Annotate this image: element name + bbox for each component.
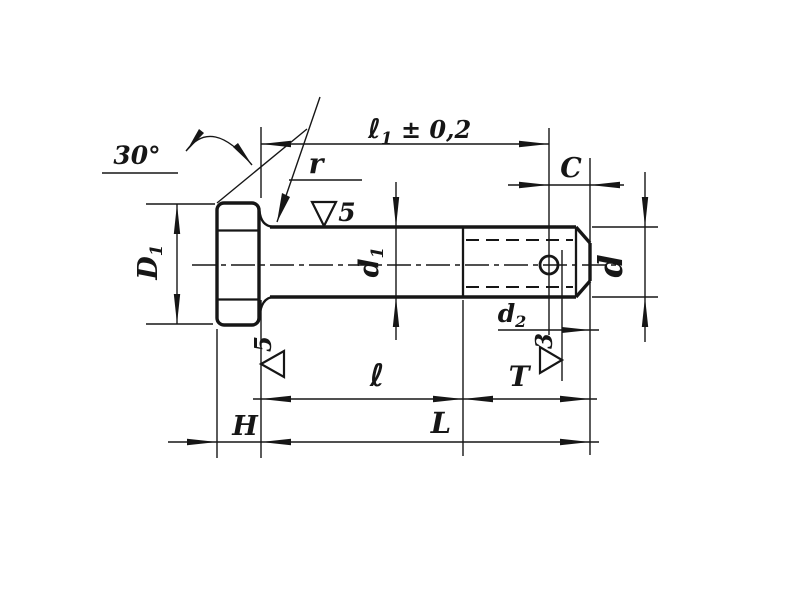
label-angle-30: 30° xyxy=(113,141,160,170)
surface-finish-value-shank: 5 xyxy=(338,198,355,227)
dim-l-arrow-right xyxy=(433,396,463,402)
r-leader-arrow xyxy=(277,193,290,222)
label-dim-d2: d2 xyxy=(498,299,527,331)
label-dim-l1-tol: ± 0,2 xyxy=(393,115,472,144)
label-dim-D1-main: D xyxy=(133,256,164,281)
dim-C-arrow-right xyxy=(590,182,620,188)
dim-D1-arrow-top xyxy=(174,204,180,234)
label-fillet-r: r xyxy=(309,147,326,180)
dim-H-arrow-left xyxy=(187,439,217,445)
label-dim-C: C xyxy=(560,153,582,184)
label-dim-H: H xyxy=(231,411,259,442)
dim-T-arrow-left xyxy=(463,396,493,402)
chamfer-edge-bottom xyxy=(576,281,590,297)
label-dim-d2-main: d xyxy=(498,299,515,328)
dim-d1-arrow-bottom xyxy=(393,297,399,327)
label-dim-L: L xyxy=(430,406,451,440)
dim-d-arrow-bottom xyxy=(642,297,648,327)
surface-finish-value-bearing: 5 xyxy=(250,336,277,352)
surface-finish-icon-thread xyxy=(540,347,562,373)
label-dim-l: ℓ xyxy=(369,358,385,394)
dim-l1-arrow-left xyxy=(261,141,291,147)
chamfer-construction-line xyxy=(217,129,307,203)
label-dim-l1: ℓ1 ± 0,2 xyxy=(367,114,471,149)
bolt-head-outline xyxy=(217,203,259,325)
chamfer-edge-top xyxy=(576,227,590,243)
angle-arc-arrow-right xyxy=(233,143,252,165)
surface-finish-icon-bearing xyxy=(261,351,284,377)
label-dim-l1-sub: 1 xyxy=(381,129,393,149)
label-dim-D1: D1 xyxy=(133,244,167,280)
dim-D1-arrow-bottom xyxy=(174,294,180,324)
part-outline xyxy=(192,203,620,325)
dimension-labels: 30° r ℓ1 ± 0,2 C D1 d1 d d2 ℓ T L H xyxy=(113,114,630,442)
label-dim-d1: d1 xyxy=(354,247,388,278)
dim-l1-arrow-right xyxy=(519,141,549,147)
dim-d-arrow-top xyxy=(642,197,648,227)
dim-d1-arrow-top xyxy=(393,197,399,227)
drawing-sheet: 5 5 3 30° r ℓ1 ± 0,2 C D1 d1 d d2 ℓ T L … xyxy=(0,0,800,600)
label-dim-d1-main: d xyxy=(354,258,385,277)
label-dim-d2-sub: 2 xyxy=(514,312,526,331)
label-dim-D1-sub: 1 xyxy=(147,244,167,256)
label-dim-l1-main: ℓ xyxy=(367,114,381,145)
angle-arc-arrow-left xyxy=(186,129,204,152)
dim-L-arrow-right xyxy=(560,439,590,445)
surface-finish-value-thread: 3 xyxy=(531,333,558,349)
surface-finish-icon-shank xyxy=(312,202,336,226)
label-dim-d1-sub: 1 xyxy=(368,247,388,259)
dim-L-arrow-left xyxy=(261,439,291,445)
label-dim-T: T xyxy=(509,360,532,393)
dim-d2-arrow xyxy=(562,327,590,333)
dim-C-arrow-left xyxy=(519,182,549,188)
bolt-drawing: 5 5 3 30° r ℓ1 ± 0,2 C D1 d1 d d2 ℓ T L … xyxy=(0,0,800,600)
dim-l-arrow-left xyxy=(261,396,291,402)
label-dim-d: d xyxy=(591,254,630,277)
dim-T-arrow-right xyxy=(560,396,590,402)
fillet-top xyxy=(260,211,274,227)
